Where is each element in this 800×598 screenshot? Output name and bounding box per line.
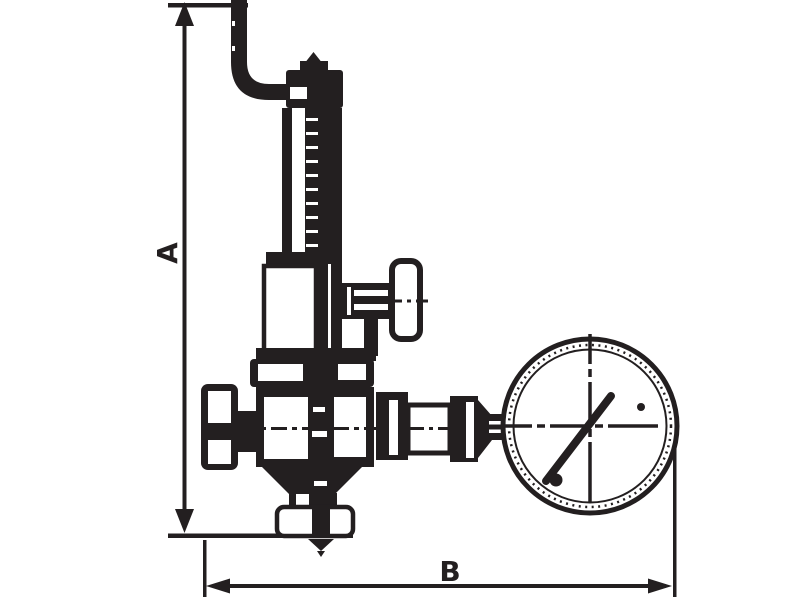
- flange-drip-tip: [308, 539, 334, 551]
- dim-b-arrow-left: [206, 579, 230, 594]
- pipe-highlight-1: [232, 21, 235, 26]
- union-nut-2-highlight: [466, 402, 474, 458]
- cap-notch: [290, 87, 307, 99]
- bottom-outlet-flange: [277, 507, 353, 557]
- body-spindle: [311, 387, 331, 508]
- spindle-notch-2: [312, 431, 327, 437]
- dim-a-line: [183, 14, 187, 518]
- flange-spindle: [312, 508, 330, 535]
- gauge-dial-dot: [637, 403, 645, 411]
- adjustment-cap: [286, 52, 343, 108]
- spring-chamber-highlight-left: [258, 364, 303, 381]
- spring-bonnet: [266, 108, 342, 266]
- valve-dimensional-drawing: A B: [0, 0, 800, 598]
- inlet-cap-panel-top: [208, 391, 231, 423]
- technical-drawing-canvas: A B: [0, 0, 800, 598]
- chamber-cylinder: [264, 266, 316, 352]
- bonnet-highlight: [292, 108, 305, 252]
- chamber-spindle-highlight: [328, 264, 331, 350]
- inlet-neck: [238, 411, 260, 452]
- gauge-connection-fittings: [376, 392, 507, 462]
- pipe-highlight-2: [232, 46, 235, 51]
- spindle-notch-1: [313, 407, 325, 412]
- dim-b-right-extension-line: [673, 436, 677, 597]
- gauge-needle-counterweight: [550, 474, 563, 487]
- dim-a-label: A: [151, 242, 184, 264]
- dim-a-arrow-down: [175, 509, 194, 533]
- spring-chamber: [250, 348, 376, 387]
- spring-chamber-highlight-right: [338, 364, 366, 380]
- dim-b-label: B: [439, 555, 460, 588]
- flange-drip-tip-small: [317, 551, 325, 557]
- tee-stub-gap: [347, 287, 351, 315]
- inlet-cap-nut: [201, 384, 260, 470]
- dim-b-left-extension-line: [203, 540, 207, 597]
- drain-tee-handle: [341, 261, 433, 339]
- dim-b-arrow-right: [648, 579, 672, 594]
- union-nut-1-highlight: [389, 400, 398, 455]
- inlet-cap-panel-bottom: [208, 440, 231, 464]
- pressure-gauge: [503, 334, 677, 520]
- tee-stub-stripe-2: [354, 304, 388, 310]
- spindle-notch-3: [314, 481, 327, 486]
- tee-stub-stripe-1: [354, 290, 388, 296]
